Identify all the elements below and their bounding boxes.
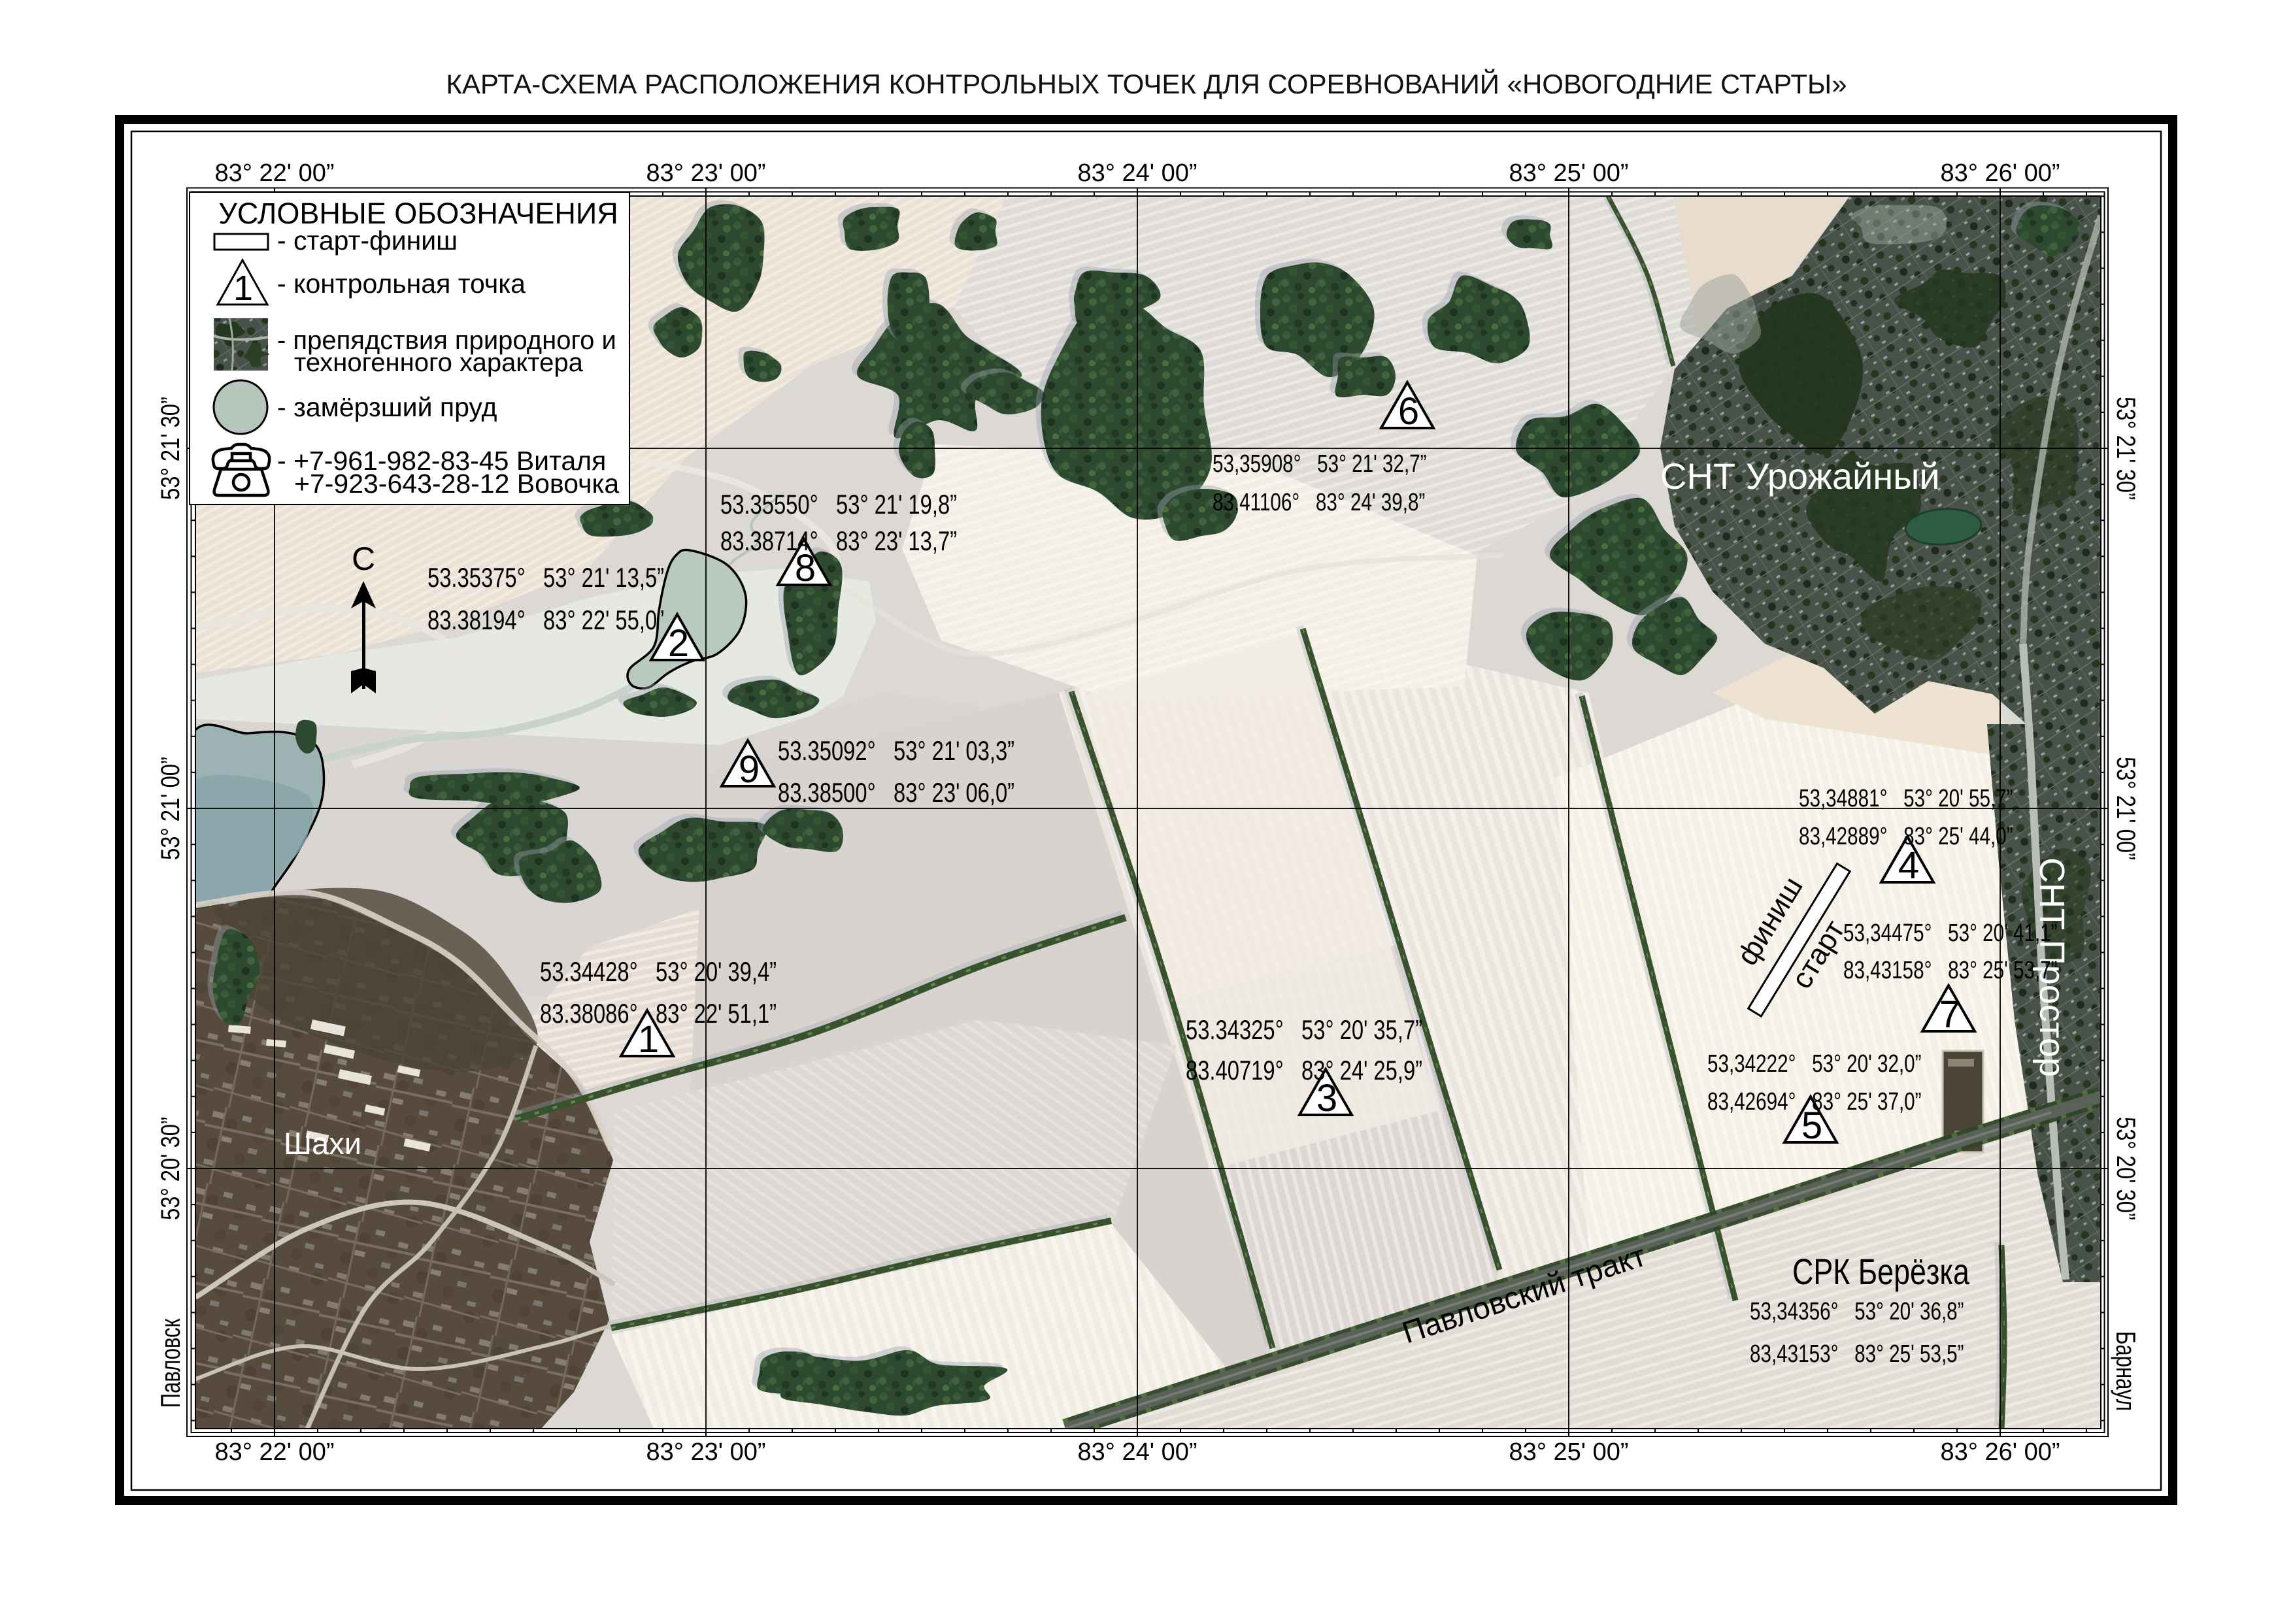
svg-text:83.38194° 83° 22' 55,0”: 83.38194° 83° 22' 55,0” — [427, 605, 664, 635]
svg-text:83° 25' 00”: 83° 25' 00” — [1509, 159, 1628, 187]
svg-text:Шахи: Шахи — [284, 1126, 361, 1161]
svg-text:83.38714° 83° 23' 13,7”: 83.38714° 83° 23' 13,7” — [720, 525, 957, 556]
svg-text:+7-923-643-28-12 Вовочка: +7-923-643-28-12 Вовочка — [294, 469, 619, 499]
svg-text:53,35908° 53° 21' 32,7”: 53,35908° 53° 21' 32,7” — [1213, 450, 1427, 478]
svg-text:83° 25' 00”: 83° 25' 00” — [1509, 1438, 1628, 1466]
svg-text:83° 26' 00”: 83° 26' 00” — [1940, 159, 2060, 187]
svg-text:83,42889° 83° 25' 44,0”: 83,42889° 83° 25' 44,0” — [1799, 823, 2013, 850]
svg-text:9: 9 — [739, 748, 760, 791]
svg-text:53.35375° 53° 21' 13,5”: 53.35375° 53° 21' 13,5” — [427, 562, 664, 593]
svg-text:83° 24' 00”: 83° 24' 00” — [1077, 1438, 1197, 1466]
svg-text:83° 23' 00”: 83° 23' 00” — [646, 159, 765, 187]
svg-text:53° 21' 00”: 53° 21' 00” — [2111, 757, 2141, 860]
svg-text:53.34325° 53° 20' 35,7”: 53.34325° 53° 20' 35,7” — [1186, 1014, 1422, 1045]
svg-text:- контрольная точка: - контрольная точка — [277, 269, 526, 299]
svg-text:83° 22' 00”: 83° 22' 00” — [214, 159, 334, 187]
svg-text:1: 1 — [233, 269, 253, 308]
svg-text:53° 20' 30”: 53° 20' 30” — [156, 1117, 185, 1220]
svg-text:53° 20' 30”: 53° 20' 30” — [2111, 1117, 2141, 1220]
svg-text:53,34881° 53° 20' 55,7”: 53,34881° 53° 20' 55,7” — [1799, 785, 2013, 812]
svg-text:С: С — [352, 540, 375, 577]
svg-text:- старт-финиш: - старт-финиш — [277, 225, 458, 256]
svg-text:Барнаул: Барнаул — [2111, 1331, 2141, 1411]
svg-text:53° 21' 00”: 53° 21' 00” — [156, 757, 185, 860]
svg-text:СРК Берёзка: СРК Берёзка — [1792, 1251, 1970, 1292]
svg-text:83.40719° 83° 24' 25,9”: 83.40719° 83° 24' 25,9” — [1186, 1055, 1422, 1085]
svg-text:2: 2 — [668, 622, 689, 665]
svg-text:53° 21' 30”: 53° 21' 30” — [2111, 397, 2141, 500]
svg-text:6: 6 — [1398, 390, 1419, 433]
svg-text:53,34222° 53° 20' 32,0”: 53,34222° 53° 20' 32,0” — [1707, 1050, 1922, 1078]
svg-text:83° 26' 00”: 83° 26' 00” — [1940, 1438, 2060, 1466]
svg-text:СНТ Урожайный: СНТ Урожайный — [1660, 456, 1940, 497]
svg-text:83,41106° 83° 24' 39,8”: 83,41106° 83° 24' 39,8” — [1213, 489, 1425, 516]
svg-text:53° 21' 30”: 53° 21' 30” — [156, 397, 185, 500]
svg-text:83° 24' 00”: 83° 24' 00” — [1077, 159, 1197, 187]
svg-text:53.35092° 53° 21' 03,3”: 53.35092° 53° 21' 03,3” — [778, 735, 1014, 766]
svg-text:53.34428° 53° 20' 39,4”: 53.34428° 53° 20' 39,4” — [540, 956, 777, 987]
svg-text:- замёрзший пруд: - замёрзший пруд — [277, 392, 497, 422]
svg-text:83,42694° 83° 25' 37,0”: 83,42694° 83° 25' 37,0” — [1707, 1088, 1922, 1116]
svg-text:83.38086° 83° 22' 51,1”: 83.38086° 83° 22' 51,1” — [540, 998, 777, 1029]
svg-text:7: 7 — [1939, 993, 1960, 1036]
svg-text:Павловск: Павловск — [155, 1318, 186, 1408]
svg-text:53,34356° 53° 20' 36,8”: 53,34356° 53° 20' 36,8” — [1750, 1298, 1964, 1325]
svg-text:53,34475° 53° 20' 41,1”: 53,34475° 53° 20' 41,1” — [1843, 920, 2058, 947]
svg-text:83.38500° 83° 23' 06,0”: 83.38500° 83° 23' 06,0” — [778, 777, 1014, 808]
svg-text:КАРТА-СХЕМА РАСПОЛОЖЕНИЯ КОНТР: КАРТА-СХЕМА РАСПОЛОЖЕНИЯ КОНТРОЛЬНЫХ ТОЧ… — [446, 68, 1847, 99]
svg-text:83,43158° 83° 25' 53,7”: 83,43158° 83° 25' 53,7” — [1843, 957, 2058, 984]
svg-text:83,43153° 83° 25' 53,5”: 83,43153° 83° 25' 53,5” — [1750, 1340, 1964, 1368]
svg-text:83° 22' 00”: 83° 22' 00” — [214, 1438, 334, 1466]
svg-text:83° 23' 00”: 83° 23' 00” — [646, 1438, 765, 1466]
svg-text:техногенного характера: техногенного характера — [294, 348, 584, 377]
svg-text:4: 4 — [1898, 844, 1919, 887]
svg-text:53.35550° 53° 21' 19,8”: 53.35550° 53° 21' 19,8” — [720, 489, 957, 520]
